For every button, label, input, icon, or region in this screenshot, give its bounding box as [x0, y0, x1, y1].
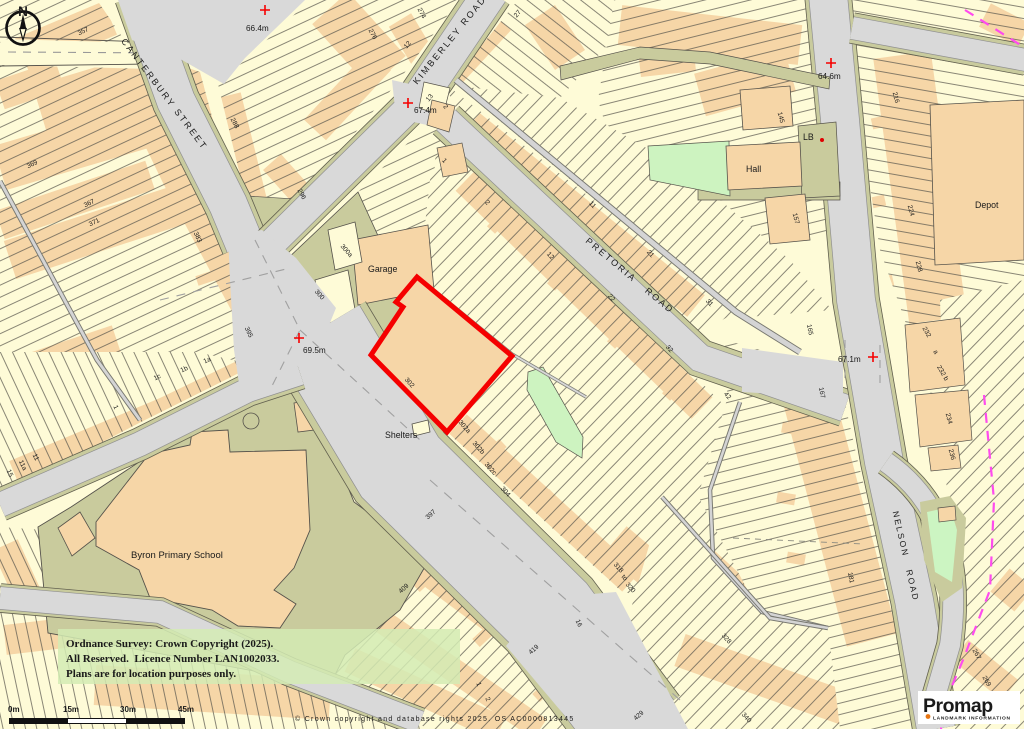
- svg-text:Depot: Depot: [975, 200, 999, 210]
- svg-text:LB: LB: [803, 132, 814, 142]
- svg-text:66.4m: 66.4m: [246, 24, 269, 33]
- svg-text:Ordnance Survey: Crown Copyrig: Ordnance Survey: Crown Copyright (2025).: [66, 638, 274, 650]
- svg-text:0m: 0m: [8, 705, 20, 714]
- svg-text:Hall: Hall: [746, 164, 761, 174]
- svg-text:Garage: Garage: [368, 264, 397, 274]
- svg-text:67.4m: 67.4m: [414, 106, 437, 115]
- svg-text:30m: 30m: [120, 705, 136, 714]
- svg-text:15m: 15m: [63, 705, 79, 714]
- svg-text:Shelters: Shelters: [385, 430, 418, 440]
- svg-text:45m: 45m: [178, 705, 194, 714]
- svg-text:Byron Primary School: Byron Primary School: [131, 550, 223, 561]
- svg-text:Promap: Promap: [923, 695, 993, 717]
- svg-text:Plans are for location purpose: Plans are for location purposes only.: [66, 668, 236, 680]
- svg-text:LANDMARK INFORMATION: LANDMARK INFORMATION: [933, 716, 1011, 722]
- svg-text:© Crown copyright and database: © Crown copyright and database rights 20…: [295, 715, 575, 723]
- svg-text:67.1m: 67.1m: [838, 355, 861, 364]
- svg-text:All Reserved. Licence Number: All Reserved. Licence Number LAN1002033.: [66, 653, 280, 665]
- svg-text:69.5m: 69.5m: [303, 346, 326, 355]
- svg-text:64.6m: 64.6m: [818, 72, 841, 81]
